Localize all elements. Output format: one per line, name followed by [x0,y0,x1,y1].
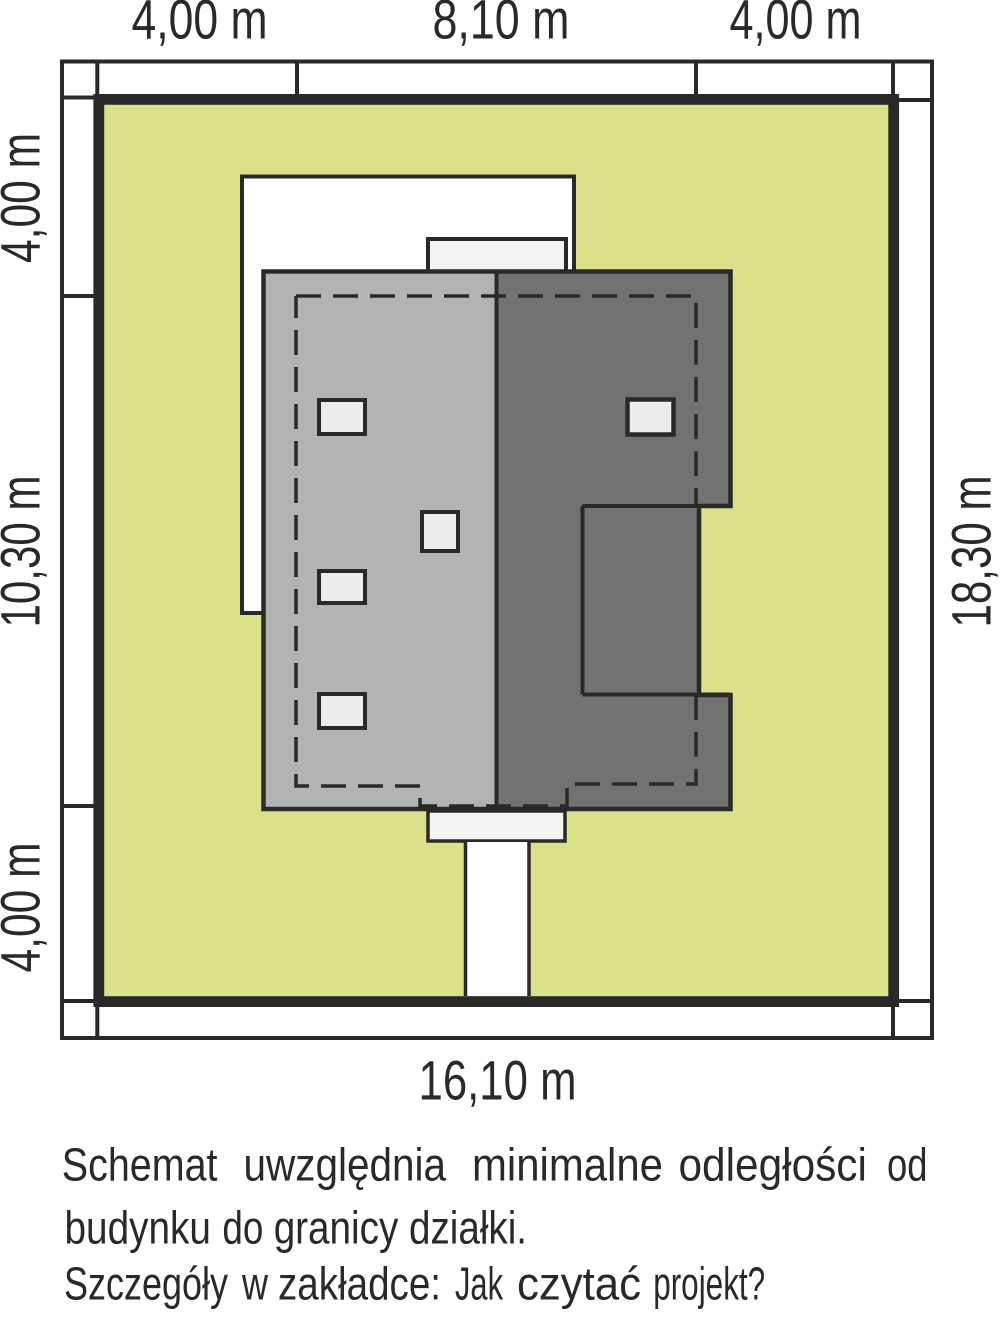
svg-text:czytać: czytać [517,1258,641,1310]
svg-text:uwzględnia: uwzględnia [244,1139,447,1191]
svg-text:18,30 m: 18,30 m [940,476,1000,628]
svg-text:4,00 m: 4,00 m [730,0,862,51]
svg-text:projekt?: projekt? [653,1258,765,1310]
svg-text:4,00 m: 4,00 m [132,0,268,51]
svg-text:Jak: Jak [455,1258,504,1310]
svg-text:Szczegóły: Szczegóły [64,1258,228,1310]
svg-text:4,00 m: 4,00 m [0,843,52,973]
svg-text:od: od [887,1139,928,1191]
svg-text:minimalne: minimalne [472,1139,663,1191]
svg-text:działki.: działki. [409,1202,527,1254]
svg-text:do: do [222,1202,263,1254]
svg-text:10,30 m: 10,30 m [0,476,52,628]
svg-text:Schemat: Schemat [62,1139,218,1191]
svg-text:odległości: odległości [679,1139,867,1191]
svg-text:8,10 m: 8,10 m [433,0,570,51]
svg-text:budynku: budynku [65,1202,211,1254]
svg-text:granicy: granicy [274,1202,399,1254]
svg-text:w: w [241,1258,268,1310]
svg-text:16,10 m: 16,10 m [419,1049,577,1112]
svg-text:4,00 m: 4,00 m [0,133,52,263]
svg-text:zakładce:: zakładce: [278,1258,441,1310]
